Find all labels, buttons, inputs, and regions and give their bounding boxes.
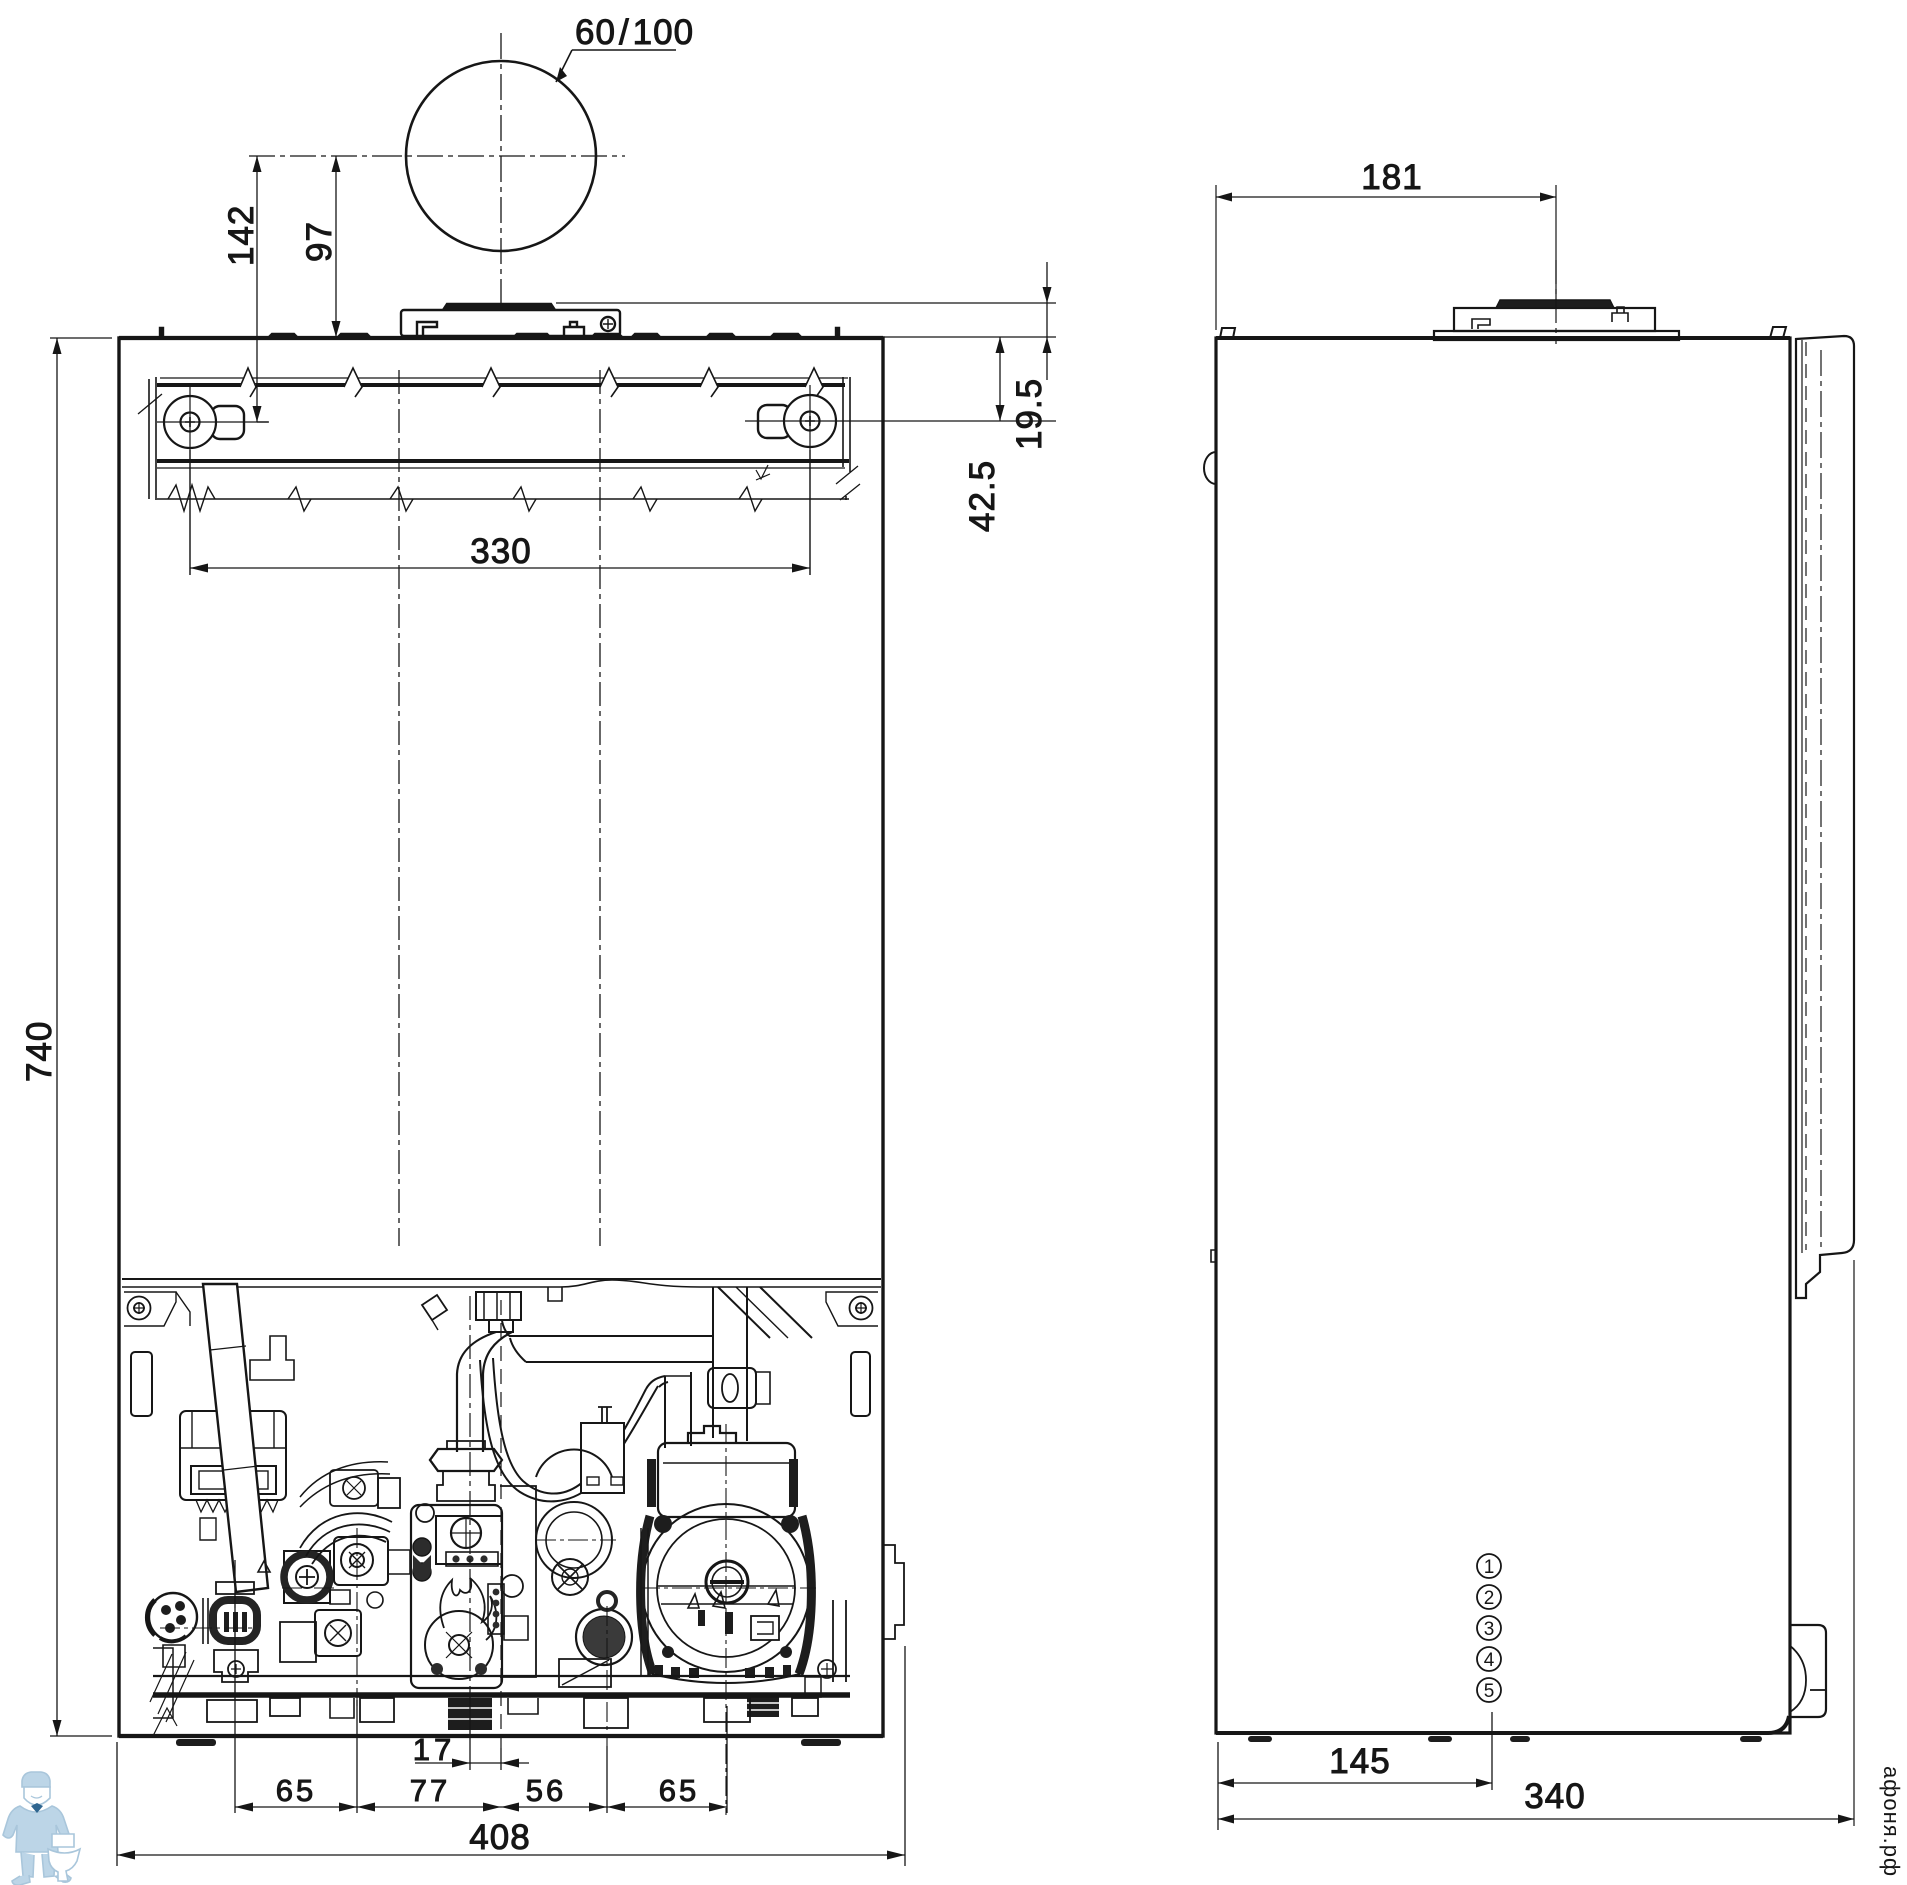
svg-text:740: 740 xyxy=(20,1021,59,1082)
svg-text:1: 1 xyxy=(1484,1557,1495,1578)
svg-text:3: 3 xyxy=(1484,1619,1495,1640)
svg-text:5: 5 xyxy=(1484,1681,1495,1702)
svg-text:145: 145 xyxy=(1329,1742,1390,1781)
svg-text:19.5: 19.5 xyxy=(1010,378,1049,450)
svg-text:65: 65 xyxy=(276,1773,316,1808)
svg-text:2: 2 xyxy=(1484,1588,1495,1609)
svg-text:142: 142 xyxy=(222,205,261,266)
svg-text:340: 340 xyxy=(1524,1777,1585,1816)
svg-text:17: 17 xyxy=(413,1732,455,1767)
svg-text:330: 330 xyxy=(470,532,531,571)
svg-text:65: 65 xyxy=(659,1773,699,1808)
svg-text:42.5: 42.5 xyxy=(963,460,1002,532)
svg-text:56: 56 xyxy=(526,1773,566,1808)
svg-text:60/100: 60/100 xyxy=(575,13,694,52)
svg-text:181: 181 xyxy=(1361,158,1422,197)
svg-text:77: 77 xyxy=(410,1773,450,1808)
svg-text:афоня.рф: афоня.рф xyxy=(1879,1766,1904,1877)
svg-text:408: 408 xyxy=(469,1818,530,1857)
svg-text:97: 97 xyxy=(300,221,339,262)
svg-text:4: 4 xyxy=(1484,1650,1495,1671)
